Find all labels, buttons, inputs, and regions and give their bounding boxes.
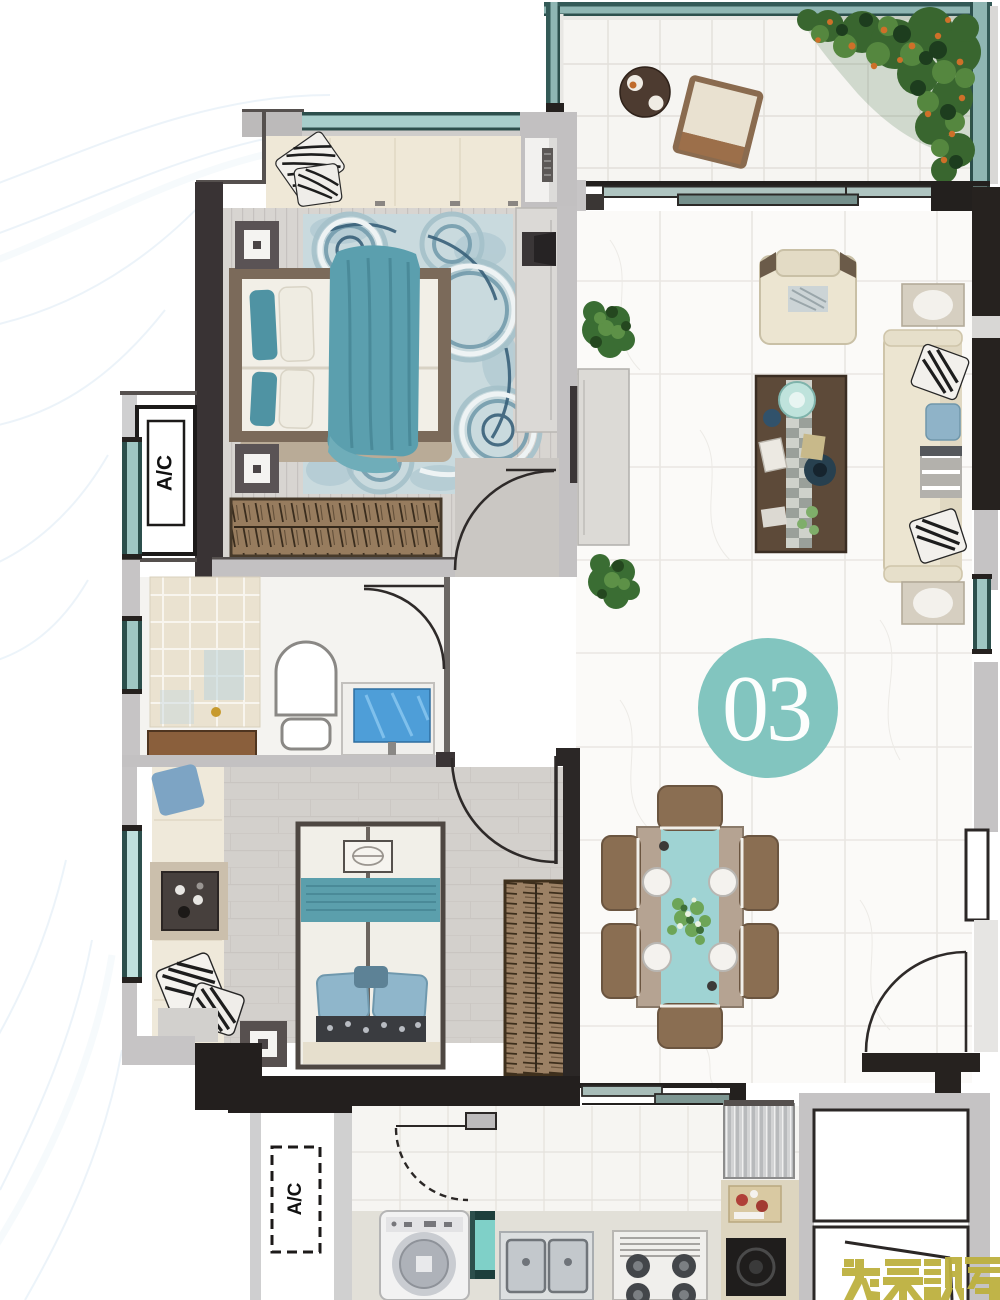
svg-text:A/C: A/C (154, 455, 177, 491)
svg-text:A/C: A/C (285, 1182, 306, 1215)
svg-text:03: 03 (722, 657, 810, 761)
